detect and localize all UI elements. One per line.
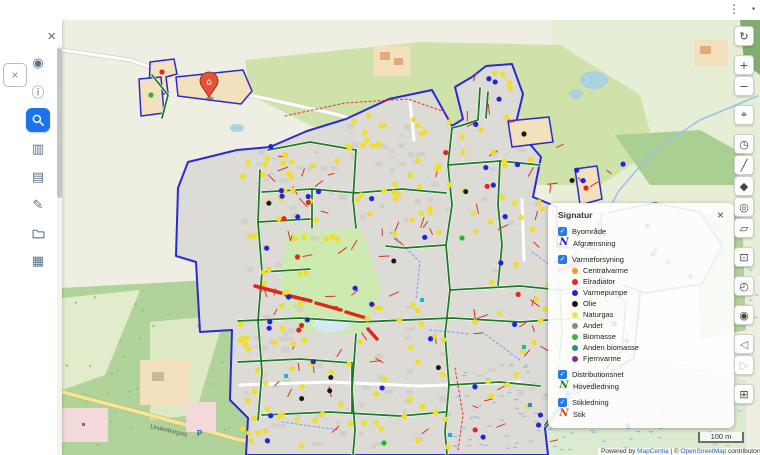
naturgas-dots <box>432 333 438 339</box>
naturgas-dots <box>376 141 382 147</box>
town-buildings <box>280 179 288 183</box>
forest-texture <box>96 443 98 445</box>
map-pin-house-icon: ⌂ <box>206 78 212 88</box>
naturgas-dots <box>242 342 248 348</box>
elradiator-dots <box>516 292 521 297</box>
olie-dots <box>463 189 468 194</box>
panel-close-icon[interactable]: × <box>47 30 56 44</box>
legend-row: NHovedledning <box>558 380 724 392</box>
browser-topbar: ⋮ ▪ <box>0 0 760 20</box>
naturgas-dots <box>330 234 336 240</box>
legend-row: NAfgrænsning <box>558 237 724 249</box>
town-buildings <box>312 442 320 446</box>
forest-texture <box>66 364 68 366</box>
folder-icon[interactable] <box>27 222 49 244</box>
forest-texture <box>119 339 121 341</box>
naturgas-dots <box>246 430 252 436</box>
next-extent-button[interactable]: ▷ <box>734 355 754 375</box>
naturgas-dots <box>252 233 258 239</box>
zoom-in-button[interactable]: + <box>734 55 754 75</box>
naturgas-dots <box>488 393 494 399</box>
naturgas-dots <box>263 381 269 387</box>
legend-row: ✓Varmeforsyning <box>558 253 724 265</box>
legend-color-dot <box>572 334 578 340</box>
attribution-text: Powered by <box>601 448 637 455</box>
varmepumpe-dots <box>422 235 427 240</box>
forest-texture <box>84 393 86 395</box>
elradiator-dots <box>485 184 490 189</box>
olie-dots <box>436 365 441 370</box>
town-buildings <box>517 389 523 395</box>
legend-rows: ✓ByområdeNAfgrænsning✓VarmeforsyningCent… <box>558 225 724 420</box>
town-buildings <box>269 173 275 176</box>
olie-dots <box>570 178 575 183</box>
naturgas-dots <box>490 149 496 155</box>
legend-row: Anden biomasse <box>558 342 724 353</box>
pond-3 <box>230 124 244 132</box>
forest-texture <box>107 392 109 394</box>
naturgas-dots <box>280 160 286 166</box>
valve-markers <box>420 298 424 302</box>
draw-icon[interactable]: ✎ <box>27 194 49 216</box>
town-buildings <box>290 206 297 211</box>
town-buildings <box>321 166 327 171</box>
naturgas-dots <box>419 131 425 137</box>
naturgas-dots <box>313 218 319 224</box>
varmepumpe-dots <box>306 194 311 199</box>
olie-dots <box>328 375 333 380</box>
varmepumpe-dots <box>369 196 374 201</box>
naturgas-dots <box>358 192 364 198</box>
elradiator-dots <box>443 150 448 155</box>
naturgas-dots <box>460 149 466 155</box>
forest-texture <box>134 303 136 305</box>
naturgas-dots <box>536 199 542 205</box>
town-buildings <box>373 442 381 446</box>
naturgas-dots <box>531 340 537 346</box>
naturgas-dots <box>284 289 290 295</box>
naturgas-dots <box>396 191 402 197</box>
town-buildings <box>404 218 408 222</box>
naturgas-dots <box>286 171 292 177</box>
biomasse-dots <box>459 235 464 240</box>
scrollbar-thumb[interactable] <box>57 48 62 198</box>
naturgas-dots <box>401 414 407 420</box>
naturgas-dots <box>397 317 403 323</box>
naturgas-dots <box>489 280 495 286</box>
town-buildings <box>271 423 276 429</box>
town-buildings <box>360 403 364 408</box>
naturgas-dots <box>299 384 305 390</box>
forest-texture <box>94 296 96 298</box>
naturgas-dots <box>408 396 414 402</box>
naturgas-dots <box>436 229 442 235</box>
school-2 <box>186 402 216 432</box>
naturgas-dots <box>362 130 368 136</box>
town-buildings <box>482 197 488 201</box>
naturgas-dots <box>262 162 268 168</box>
forest-texture <box>123 356 125 358</box>
visibility-button[interactable]: ◉ <box>734 305 754 325</box>
naturgas-dots <box>345 143 351 149</box>
farm-n-bld1 <box>380 52 390 60</box>
forest-texture <box>139 338 141 340</box>
forest-texture <box>110 420 112 422</box>
naturgas-dots <box>471 211 477 217</box>
naturgas-dots <box>362 420 368 426</box>
legend-panel: Signatur × ✓ByområdeNAfgrænsning✓Varmefo… <box>548 203 734 428</box>
panel-scrollbar[interactable] <box>57 45 62 455</box>
naturgas-dots <box>366 113 372 119</box>
town-buildings <box>399 162 405 166</box>
legend-label: Biomasse <box>583 332 616 341</box>
town-buildings <box>347 124 354 129</box>
tool-column: ◉ⓘ▥▤✎▦ <box>24 52 52 272</box>
naturgas-dots <box>338 402 344 408</box>
town-buildings <box>294 304 298 308</box>
varmepumpe-dots <box>380 385 385 390</box>
shop-marker <box>82 423 85 426</box>
naturgas-dots <box>265 155 271 161</box>
valve-markers <box>284 374 288 378</box>
streetview-icon[interactable]: ◉ <box>27 52 49 74</box>
legend-label: Stik <box>573 410 586 419</box>
naturgas-dots <box>252 389 258 395</box>
town-buildings <box>256 162 263 166</box>
town-buildings <box>490 168 494 171</box>
naturgas-dots <box>279 412 285 418</box>
naturgas-dots <box>459 134 465 140</box>
map-attribution: Powered by MapCentia | © OpenStreetMap c… <box>598 448 760 455</box>
forest-texture <box>142 309 144 311</box>
legend-label: Distributionsnet <box>572 370 624 379</box>
naturgas-dots <box>533 296 539 302</box>
naturgas-dots <box>392 182 398 188</box>
naturgas-dots <box>417 184 423 190</box>
varmepumpe-dots <box>538 412 543 417</box>
naturgas-dots <box>312 418 318 424</box>
naturgas-dots <box>294 417 300 423</box>
legend-label: Varmeforsyning <box>572 255 624 264</box>
naturgas-dots <box>245 160 251 166</box>
naturgas-dots <box>251 415 257 421</box>
naturgas-dots <box>393 196 399 202</box>
forest-texture <box>224 429 226 431</box>
naturgas-dots <box>266 267 272 273</box>
naturgas-dots <box>255 368 261 374</box>
naturgas-dots <box>420 405 426 411</box>
street-x2 <box>522 200 524 260</box>
naturgas-dots <box>262 281 268 287</box>
forest-texture <box>228 427 230 429</box>
naturgas-dots <box>334 158 340 164</box>
legend-checkbox[interactable]: ✓ <box>558 227 567 236</box>
naturgas-dots <box>472 229 478 235</box>
farm-sw-bld <box>152 372 164 381</box>
measure-line-button[interactable]: ╱ <box>734 155 754 175</box>
naturgas-dots <box>513 372 519 378</box>
naturgas-dots <box>520 348 526 354</box>
naturgas-dots <box>276 216 282 222</box>
legend-line-symbol: N <box>558 238 570 248</box>
olie-dots <box>266 201 271 206</box>
town-buildings <box>408 152 414 158</box>
legend-row: Varmepumpe <box>558 287 724 298</box>
naturgas-dots <box>500 195 506 201</box>
town-buildings <box>298 166 304 170</box>
town-buildings <box>385 390 394 394</box>
naturgas-dots <box>415 438 421 444</box>
forest-texture <box>110 373 112 375</box>
town-buildings <box>406 390 412 395</box>
time-slider-button[interactable]: ◴ <box>734 276 754 296</box>
naturgas-dots <box>364 316 370 322</box>
naturgas-dots <box>272 340 278 346</box>
naturgas-dots <box>289 366 295 372</box>
naturgas-dots <box>391 190 397 196</box>
forest-texture <box>130 426 132 428</box>
varmepumpe-dots <box>512 322 517 327</box>
varmepumpe-dots <box>472 384 477 389</box>
naturgas-dots <box>415 359 421 365</box>
town-buildings <box>488 368 496 372</box>
naturgas-dots <box>351 118 357 124</box>
varmepumpe-dots <box>574 168 579 173</box>
print-icon[interactable]: ▦ <box>27 250 49 272</box>
naturgas-dots <box>542 307 548 313</box>
attribution-link[interactable]: OpenStreetMap <box>680 448 726 455</box>
naturgas-dots <box>408 345 414 351</box>
naturgas-dots <box>505 382 511 388</box>
scale-bar: 100 m <box>698 432 744 443</box>
town-buildings <box>380 204 385 208</box>
naturgas-dots <box>410 302 416 308</box>
town-buildings <box>380 145 388 150</box>
legend-line-symbol: N <box>558 409 570 419</box>
forest-texture <box>113 411 115 413</box>
info-icon[interactable]: ⓘ <box>27 80 49 102</box>
draw-polygon-button[interactable]: ◆ <box>734 176 754 196</box>
valve-markers <box>522 345 526 349</box>
elradiator-dots <box>473 427 478 432</box>
farm-ne-bld <box>700 46 711 54</box>
naturgas-dots <box>485 379 491 385</box>
naturgas-dots <box>290 341 296 347</box>
naturgas-dots <box>301 337 307 343</box>
naturgas-dots <box>238 322 244 328</box>
naturgas-dots <box>513 263 519 269</box>
town-buildings <box>311 236 319 240</box>
biomasse-dots <box>148 92 153 97</box>
town-buildings <box>529 387 535 391</box>
naturgas-dots <box>279 326 285 332</box>
naturgas-dots <box>378 426 384 432</box>
varmepumpe-dots <box>279 194 284 199</box>
town-buildings <box>319 443 324 446</box>
naturgas-dots <box>245 398 251 404</box>
farm-red-dots <box>159 69 164 74</box>
geolocation-button[interactable]: ⌖ <box>734 105 754 125</box>
legend-row: ✓Stikledning <box>558 396 724 408</box>
town-buildings <box>390 150 396 153</box>
legend-row: Fjernvarme <box>558 353 724 364</box>
naturgas-dots <box>335 237 341 243</box>
layers-icon[interactable]: ▥ <box>27 138 49 160</box>
legend-label: Stikledning <box>572 398 609 407</box>
town-buildings <box>241 219 248 225</box>
collapse-panel-button[interactable]: × <box>3 63 27 87</box>
naturgas-dots <box>415 308 421 314</box>
previous-extent-button[interactable]: ◁ <box>734 334 754 354</box>
naturgas-dots <box>247 233 253 239</box>
naturgas-dots <box>492 70 498 76</box>
naturgas-dots <box>260 172 266 178</box>
olie-dots <box>327 388 332 393</box>
naturgas-dots <box>264 406 270 412</box>
farm-4 <box>508 117 553 147</box>
naturgas-dots <box>447 182 453 188</box>
town-buildings <box>271 157 277 160</box>
clock-tool-button[interactable]: ◷ <box>734 134 754 154</box>
forest-texture <box>136 388 138 390</box>
legend-row: Biomasse <box>558 331 724 342</box>
naturgas-dots <box>409 217 415 223</box>
varmepumpe-dots <box>268 144 273 149</box>
biomasse-dots <box>381 440 386 445</box>
town-buildings <box>398 143 405 148</box>
naturgas-dots <box>415 157 421 163</box>
legend-header: Signatur × <box>558 210 724 220</box>
naturgas-dots <box>240 173 246 179</box>
olie-dots <box>391 259 396 264</box>
town-buildings <box>281 347 290 352</box>
window-control-icon[interactable]: ▪ <box>752 4 755 13</box>
town-buildings <box>336 422 340 425</box>
varmepumpe-dots <box>267 326 272 331</box>
legend-row: NStik <box>558 408 724 420</box>
legend-color-dot <box>572 323 578 329</box>
forest-texture <box>210 383 212 385</box>
town-buildings <box>338 194 346 200</box>
town-buildings <box>331 166 338 170</box>
draw-circle-button[interactable]: ◎ <box>734 197 754 217</box>
naturgas-dots <box>440 372 446 378</box>
naturgas-dots <box>360 142 366 148</box>
legend-close-icon[interactable]: × <box>717 210 724 220</box>
poi-marker-blue <box>528 403 532 407</box>
town-buildings <box>359 432 363 437</box>
farm-5 <box>575 166 602 205</box>
town-buildings <box>286 337 293 340</box>
legend-row: ✓Distributionsnet <box>558 368 724 380</box>
naturgas-dots <box>364 137 370 143</box>
legend-label: Andet <box>583 321 603 330</box>
town-buildings <box>376 161 383 166</box>
varmepumpe-dots <box>481 434 486 439</box>
town-buildings <box>314 150 318 154</box>
legend-checkbox[interactable]: ✓ <box>558 398 567 407</box>
naturgas-dots <box>427 205 433 211</box>
elradiator-dots <box>281 216 286 221</box>
naturgas-dots <box>282 152 288 158</box>
naturgas-dots <box>367 211 373 217</box>
farm-red-dots <box>583 185 588 190</box>
naturgas-dots <box>441 337 447 343</box>
naturgas-dots <box>262 428 268 434</box>
legend-color-dot <box>572 345 578 351</box>
pond-1 <box>580 71 608 89</box>
legend-icon[interactable]: ▤ <box>27 166 49 188</box>
kebab-menu-icon[interactable]: ⋮ <box>728 2 740 16</box>
town-buildings <box>414 199 421 204</box>
valve-markers <box>448 433 452 437</box>
naturgas-dots <box>381 188 387 194</box>
naturgas-dots <box>240 336 246 342</box>
naturgas-dots <box>320 411 326 417</box>
varmepumpe-dots <box>498 260 503 265</box>
naturgas-dots <box>328 369 334 375</box>
reset-north-button[interactable]: ↻ <box>734 26 754 46</box>
naturgas-dots <box>298 443 304 449</box>
naturgas-dots <box>382 376 388 382</box>
legend-row: Elradiator <box>558 276 724 287</box>
zoom-out-button[interactable]: − <box>734 76 754 96</box>
legend-checkbox[interactable]: ✓ <box>558 255 567 264</box>
naturgas-dots <box>377 305 383 311</box>
search-icon[interactable] <box>26 108 50 132</box>
eraser-button[interactable]: ▱ <box>734 218 754 238</box>
legend-title: Signatur <box>558 210 592 220</box>
legend-row: ✓Byområde <box>558 225 724 237</box>
town-buildings <box>406 327 414 330</box>
fullscreen-button[interactable]: ⊡ <box>734 247 754 267</box>
legend-row: Naturgas <box>558 309 724 320</box>
town-buildings <box>287 328 295 333</box>
varmepumpe-dots <box>279 188 284 193</box>
naturgas-dots <box>418 322 424 328</box>
legend-color-dot <box>572 268 578 274</box>
naturgas-dots <box>248 438 254 444</box>
attribution-link[interactable]: MapCentia <box>637 448 668 455</box>
forest-texture <box>85 402 87 404</box>
legend-row: Olie <box>558 298 724 309</box>
varmepumpe-dots <box>483 165 488 170</box>
legend-color-dot <box>572 301 578 307</box>
legend-color-dot <box>572 279 578 285</box>
naturgas-dots <box>472 319 478 325</box>
naturgas-dots <box>488 219 494 225</box>
legend-label: Varmepumpe <box>583 288 627 297</box>
town-buildings <box>428 197 433 202</box>
naturgas-dots <box>348 421 354 427</box>
attribution-text: | © <box>669 448 681 455</box>
naturgas-dots <box>539 206 545 212</box>
naturgas-dots <box>443 416 449 422</box>
legend-label: Centralvarme <box>583 266 628 275</box>
elradiator-dots <box>295 254 300 259</box>
naturgas-dots <box>346 362 352 368</box>
legend-line-symbol: N <box>558 381 570 391</box>
town-buildings <box>407 369 413 374</box>
elradiator-dots <box>296 328 301 333</box>
varmepumpe-dots <box>286 294 291 299</box>
legend-checkbox[interactable]: ✓ <box>558 370 567 379</box>
naturgas-dots <box>255 430 261 436</box>
zoom-to-extent-button[interactable]: ⊞ <box>734 384 754 404</box>
forest-texture <box>116 369 118 371</box>
varmepumpe-dots <box>581 178 586 183</box>
legend-label: Elradiator <box>583 277 615 286</box>
